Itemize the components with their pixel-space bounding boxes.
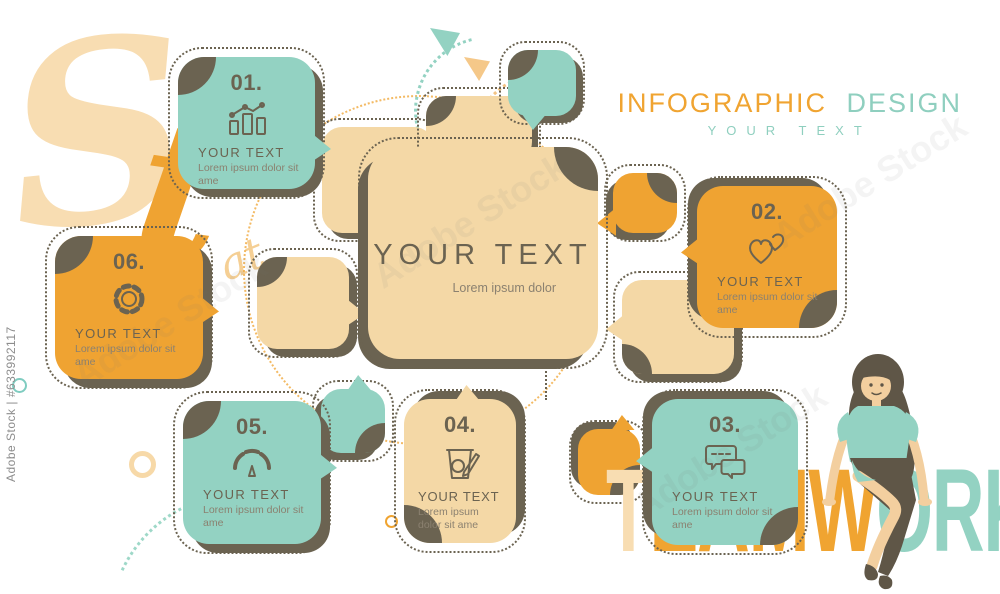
- step-06-body: Lorem ipsum dolor sit ame: [75, 343, 191, 369]
- hearts-icon: [697, 229, 837, 267]
- small-orange-ring-decoration: [385, 515, 398, 528]
- step-03-number: 03.: [652, 412, 798, 438]
- step-01-number: 01.: [178, 70, 315, 96]
- gauge-icon: [183, 444, 321, 480]
- stock-id-watermark: Adobe Stock | #633992117: [4, 326, 18, 482]
- center-card-body: Lorem ipsum dolor: [368, 280, 556, 297]
- page-title-part1: INFOGRAPHIC: [617, 88, 827, 118]
- page-title-part2: DESIGN: [846, 88, 962, 118]
- pale-ring-decoration: [129, 451, 156, 478]
- step-01-title: YOUR TEXT: [198, 145, 305, 160]
- step-03-title: YOUR TEXT: [672, 489, 788, 504]
- bar-chart-icon: [178, 100, 315, 138]
- orange-filler-bubble-right: [613, 173, 677, 233]
- step-04-number: 04.: [404, 412, 516, 438]
- step-02-body: Lorem ipsum dolor sit ame: [717, 291, 825, 317]
- step-06-number: 06.: [55, 249, 203, 275]
- step-05-body: Lorem ipsum dolor sit ame: [203, 504, 309, 530]
- step-06-title: YOUR TEXT: [75, 326, 193, 341]
- chat-bubbles-icon: [652, 442, 798, 482]
- step-card-06: 06. YOUR TEXT Lorem ipsum dolor sit ame: [55, 236, 203, 379]
- header: INFOGRAPHIC DESIGN YOUR TEXT: [617, 88, 962, 138]
- step-05-number: 05.: [183, 414, 321, 440]
- step-02-title: YOUR TEXT: [717, 274, 827, 289]
- infographic-canvas: S t at: [0, 0, 1000, 594]
- step-card-02: 02. YOUR TEXT Lorem ipsum dolor sit ame: [697, 186, 837, 328]
- paint-tools-icon: [404, 442, 516, 482]
- step-03-body: Lorem ipsum dolor sit ame: [672, 506, 786, 532]
- sitting-woman-illustration: [818, 350, 940, 594]
- step-card-05: 05. YOUR TEXT Lorem ipsum dolor sit ame: [183, 401, 321, 544]
- center-card-title: YOUR TEXT: [368, 239, 598, 272]
- step-card-01: 01. YOUR TEXT Lorem ipsum dolor sit ame: [178, 57, 315, 189]
- cream-filler-bubble-left: [257, 257, 349, 349]
- step-card-04: 04. YOUR TEXT Lorem ipsum dolor sit ame: [404, 399, 516, 543]
- dotted-connector-line: [545, 352, 547, 400]
- step-04-body: Lorem ipsum dolor sit ame: [418, 506, 504, 532]
- page-title: INFOGRAPHIC DESIGN: [617, 88, 962, 119]
- page-subtitle: YOUR TEXT: [617, 123, 962, 138]
- step-02-number: 02.: [697, 199, 837, 225]
- step-05-title: YOUR TEXT: [203, 487, 311, 502]
- teal-filler-bubble-top: [508, 50, 576, 116]
- center-card: YOUR TEXT Lorem ipsum dolor: [368, 147, 598, 359]
- step-04-title: YOUR TEXT: [418, 489, 506, 504]
- step-card-03: 03. YOUR TEXT Lorem ipsum dolor sit ame: [652, 399, 798, 545]
- step-01-body: Lorem ipsum dolor sit ame: [198, 162, 303, 188]
- teal-filler-bubble-bottom: [321, 389, 385, 453]
- gear-icon: [55, 279, 203, 319]
